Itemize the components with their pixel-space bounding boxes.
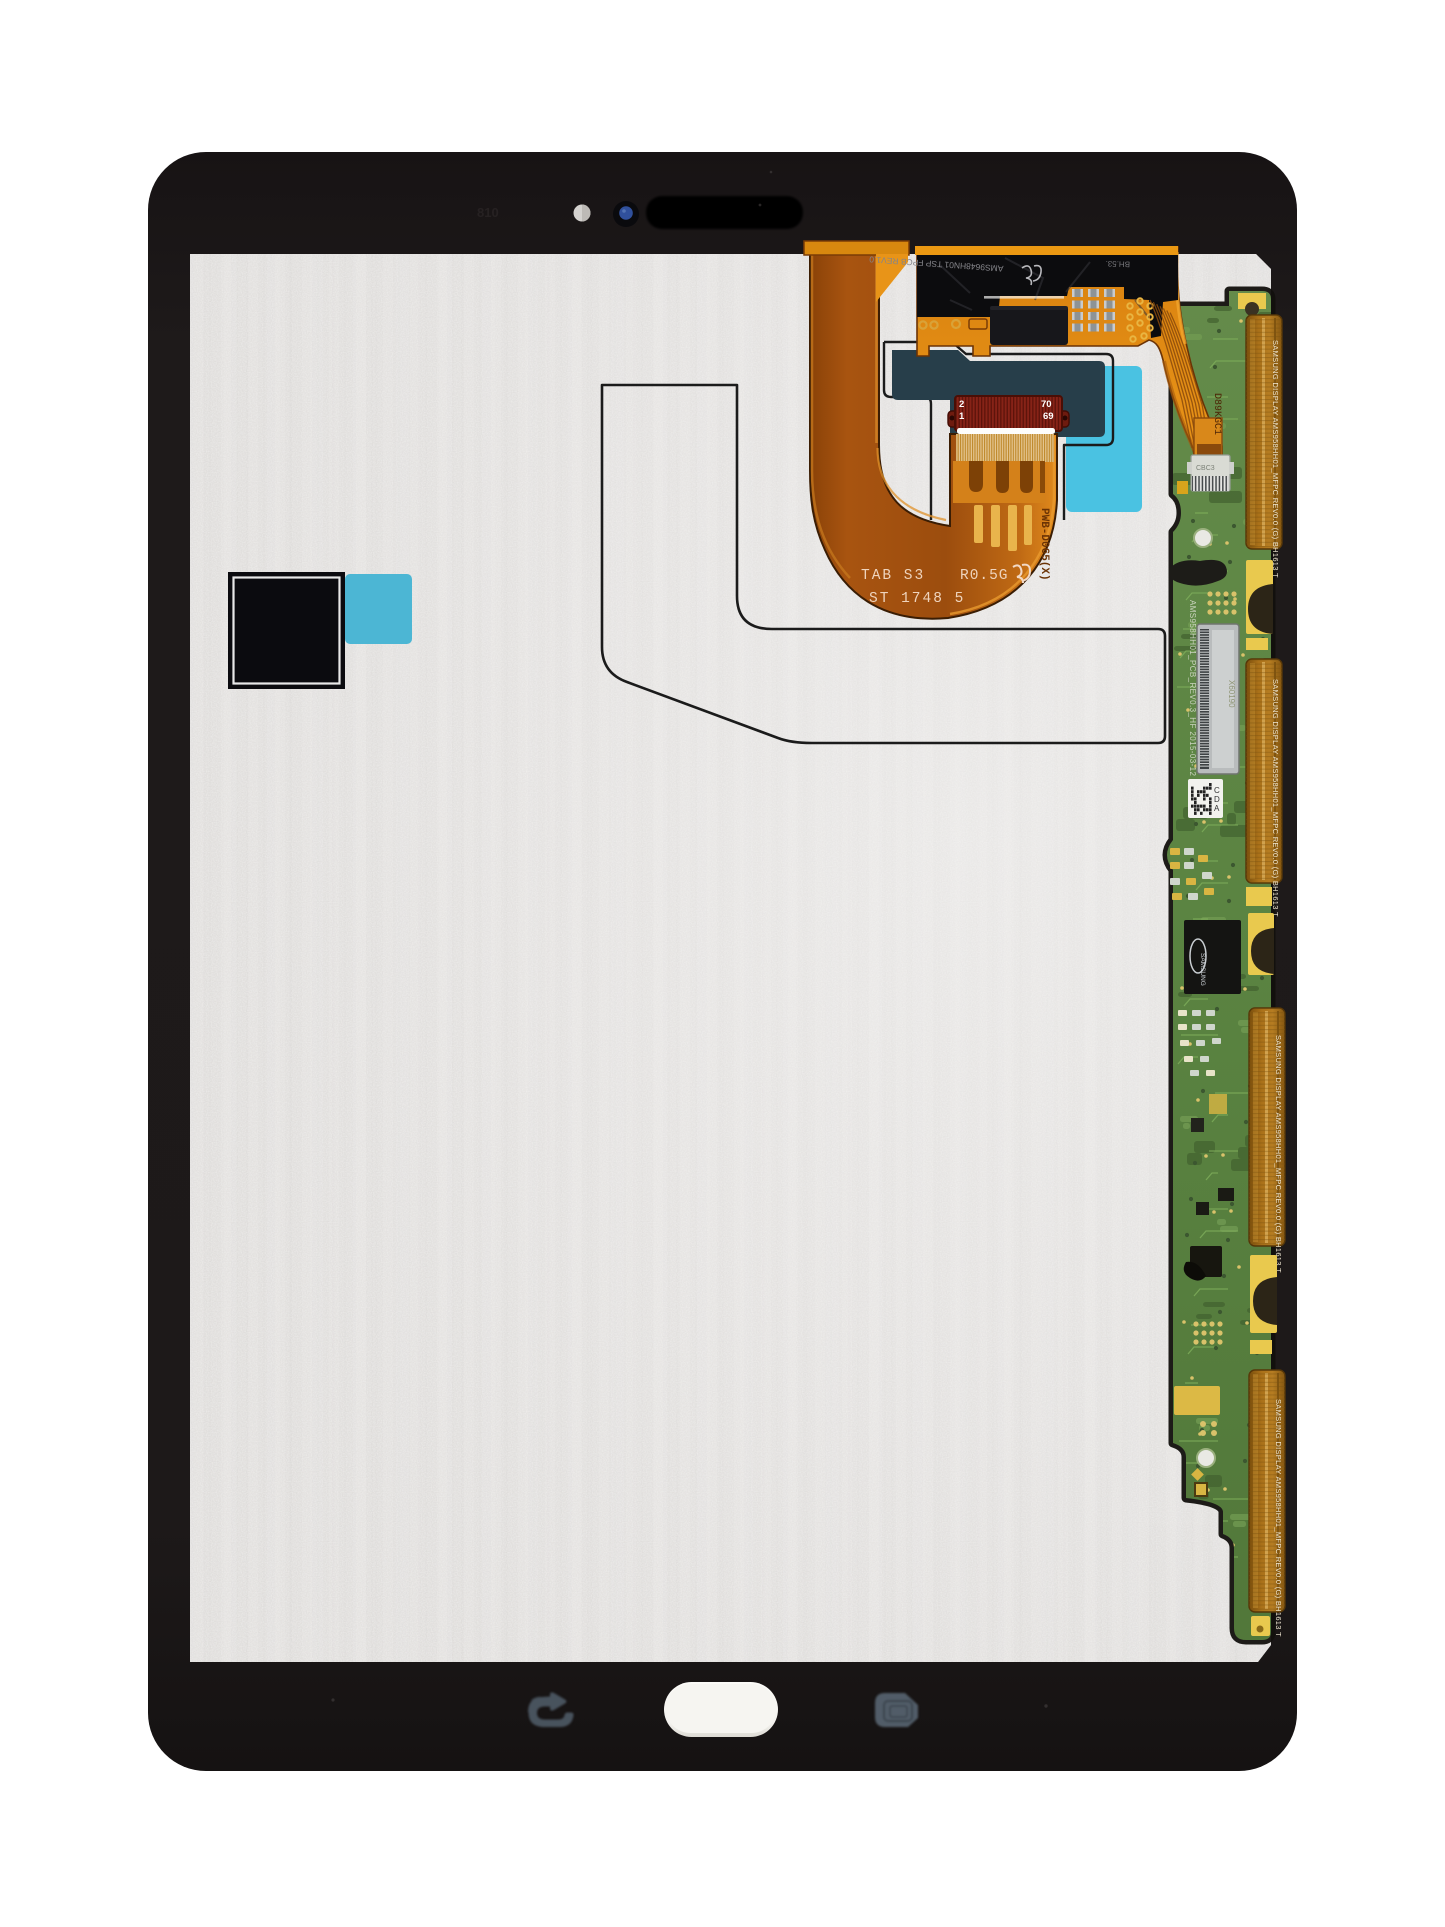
svg-text:SAMSUNG DISPLAY AMS958HH01_MFP: SAMSUNG DISPLAY AMS958HH01_MFPC REV0.0 (…: [1271, 340, 1280, 578]
svg-text:69: 69: [1043, 411, 1054, 422]
svg-text:BH.53.: BH.53.: [1105, 259, 1130, 269]
svg-text:SAMSUNG: SAMSUNG: [1199, 953, 1206, 986]
svg-text:TAB S3: TAB S3: [861, 568, 925, 584]
svg-text:C: C: [1214, 786, 1220, 795]
svg-text:X60190: X60190: [1227, 680, 1236, 708]
svg-text:SAMSUNG DISPLAY AMS958HH01_MFP: SAMSUNG DISPLAY AMS958HH01_MFPC REV0.0 (…: [1271, 679, 1280, 917]
svg-text:PWB-D065(X): PWB-D065(X): [1038, 508, 1050, 581]
svg-text:2: 2: [959, 399, 964, 410]
svg-text:SAMSUNG DISPLAY AMS958HH01_MFP: SAMSUNG DISPLAY AMS958HH01_MFPC REV0.0 (…: [1274, 1035, 1283, 1273]
svg-text:AMS958HH01_PCB_REV0.3_HF 2015-: AMS958HH01_PCB_REV0.3_HF 2015-03-12: [1188, 600, 1197, 776]
svg-text:A: A: [1214, 804, 1220, 813]
svg-text:1: 1: [959, 411, 965, 422]
svg-text:D89KGC1: D89KGC1: [1211, 393, 1222, 435]
svg-text:ST 1748 5: ST 1748 5: [869, 591, 965, 607]
svg-text:810: 810: [477, 205, 499, 220]
svg-text:SAMSUNG DISPLAY AMS958HH01_MFP: SAMSUNG DISPLAY AMS958HH01_MFPC REV0.0 (…: [1274, 1399, 1283, 1637]
svg-text:70: 70: [1041, 399, 1052, 410]
svg-text:CBC3: CBC3: [1196, 465, 1215, 472]
svg-text:D: D: [1214, 795, 1220, 804]
svg-text:R0.5G: R0.5G: [960, 568, 1009, 584]
